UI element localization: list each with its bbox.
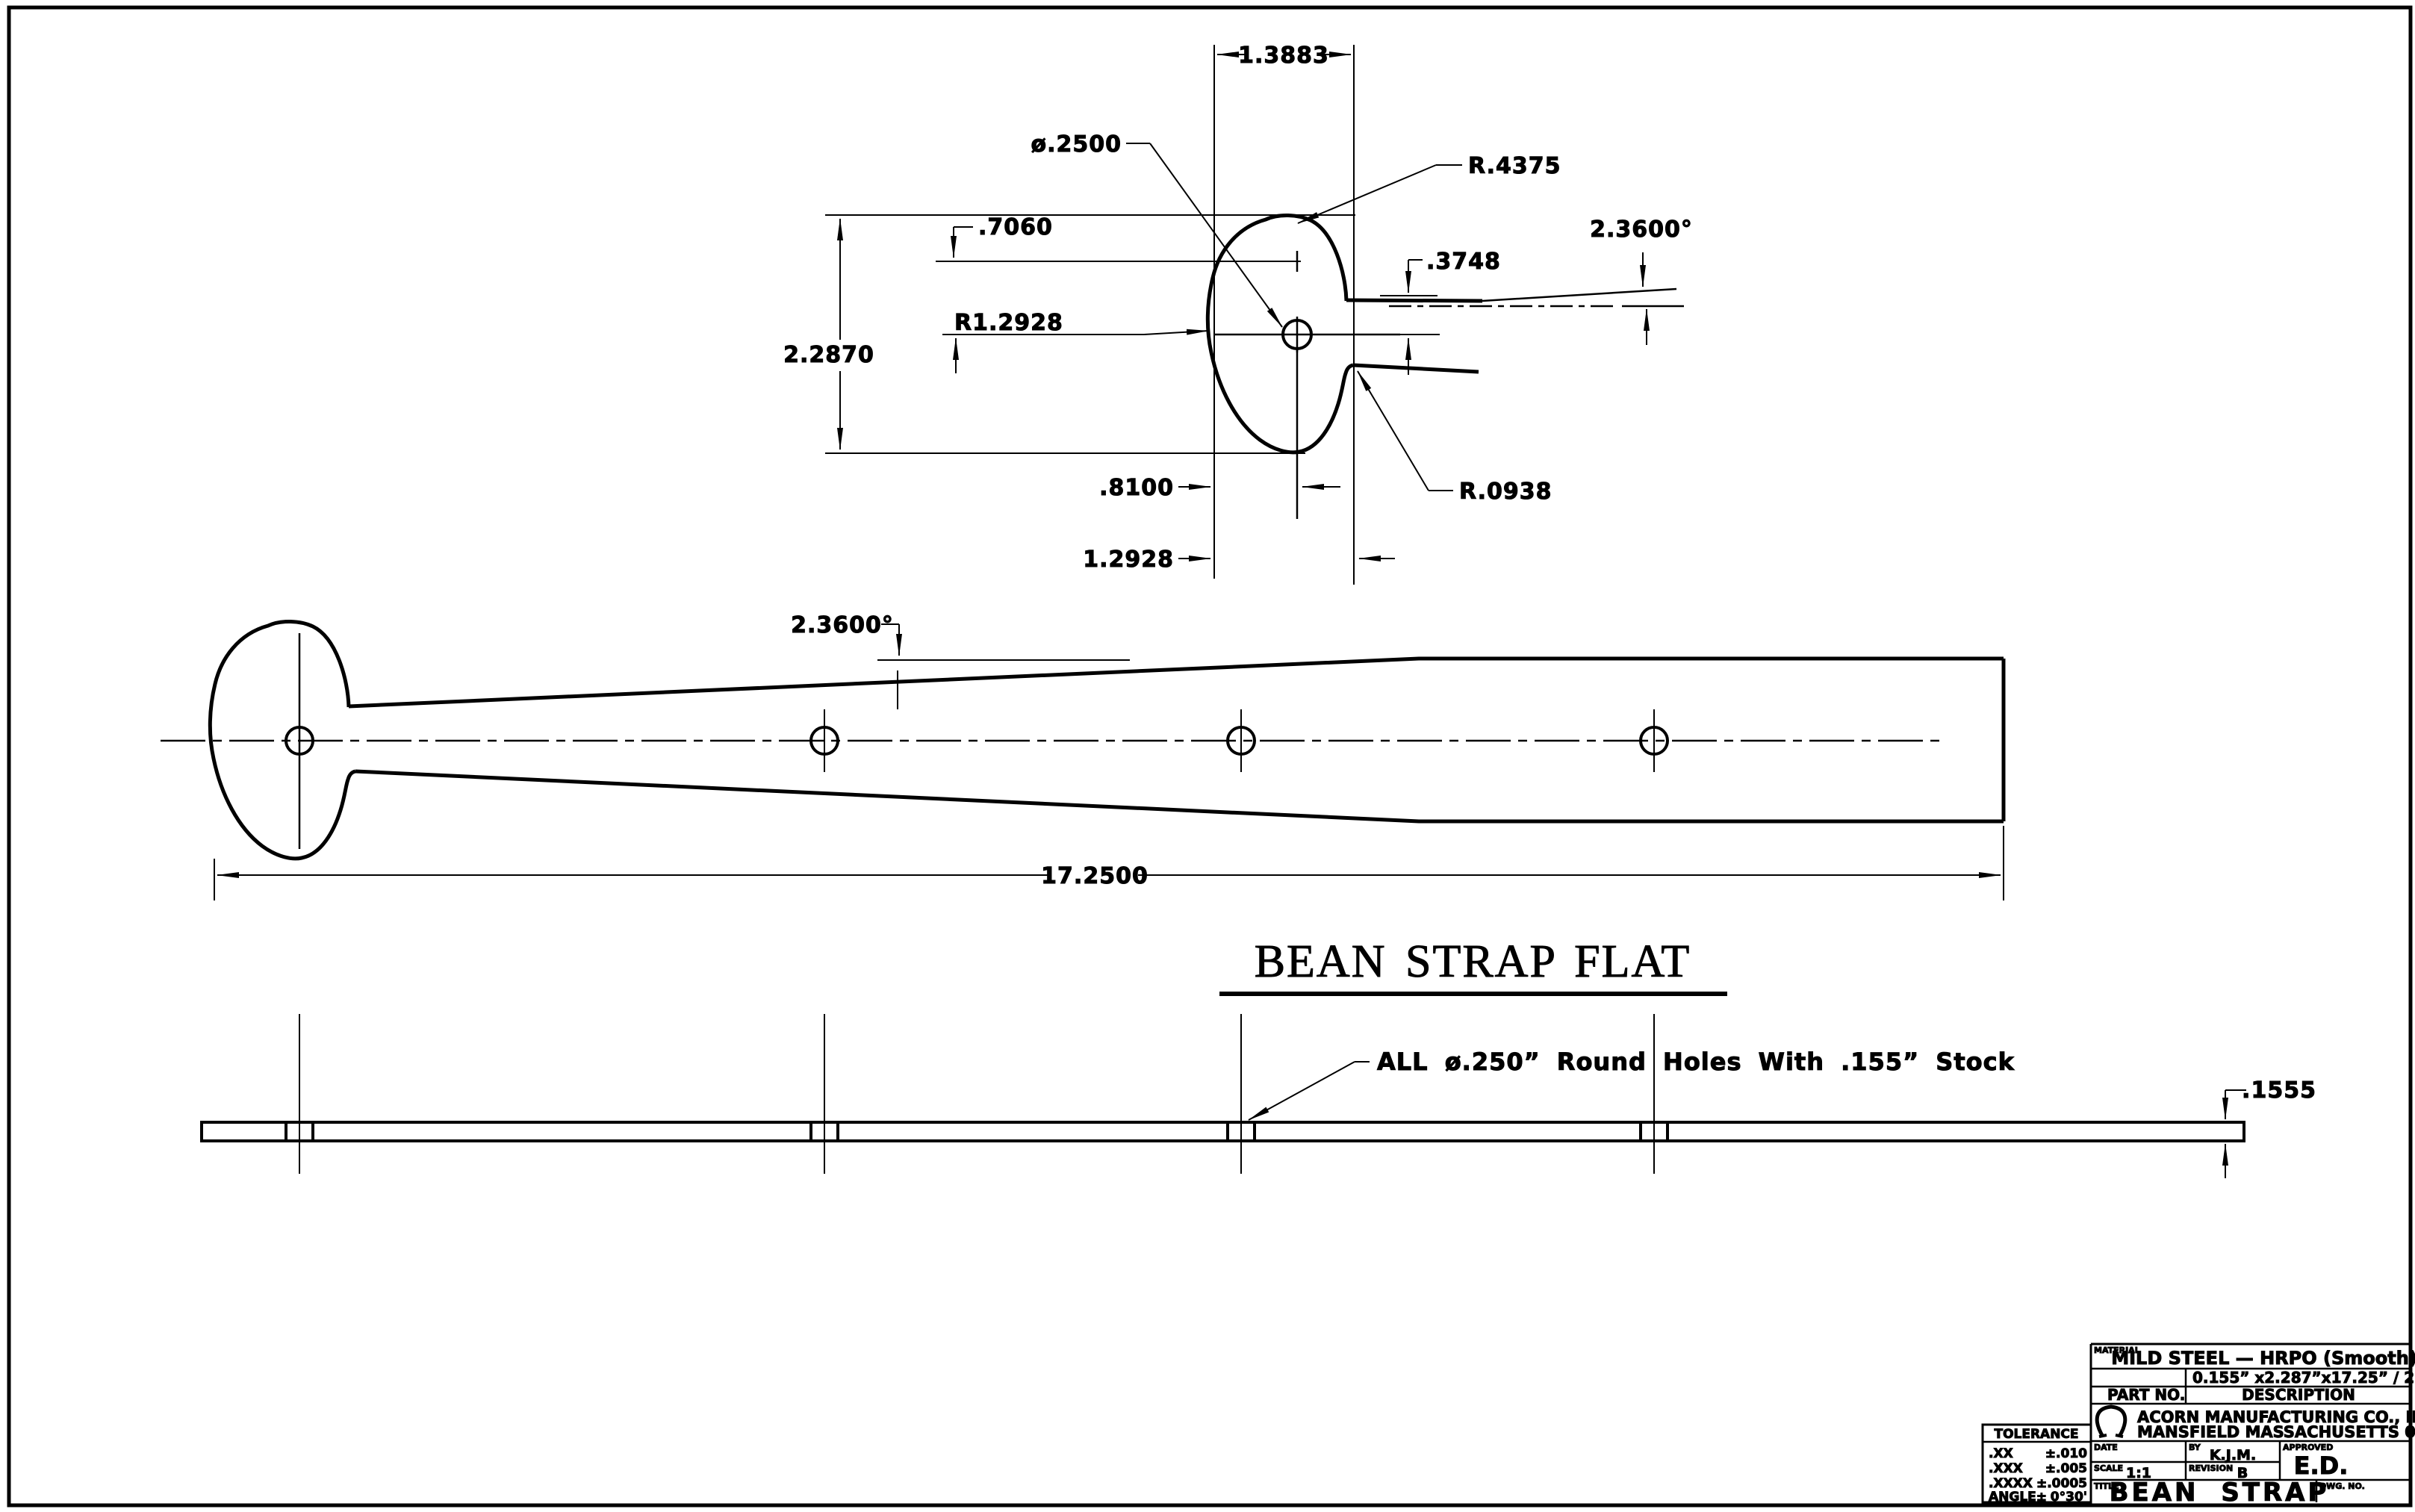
dim-head-height: 2.2870 <box>783 219 874 449</box>
flat-view: 2.3600° 17.2500 BEAN STRAP FLAT <box>161 612 2004 996</box>
dim-notch-offset: 1.2928 <box>1083 547 1395 573</box>
dwg-no-label: DWG. NO. <box>2319 1481 2365 1491</box>
dim-main-radius-text: R1.2928 <box>954 310 1063 336</box>
description-label: DESCRIPTION <box>2242 1386 2355 1404</box>
dim-head-height-text: 2.2870 <box>783 342 874 368</box>
dim-edge-to-center-text: .3748 <box>1426 249 1501 275</box>
dim-lobe-radius: R.4375 <box>1298 153 1561 223</box>
date-label: DATE <box>2094 1443 2118 1452</box>
dim-head-width: 1.3883 <box>1217 43 1351 69</box>
dim-thickness-text: .1555 <box>2242 1077 2316 1104</box>
bean-strap-drawing: 1.3883 R.4375 ø.2500 .7060 2.2870 <box>0 0 2415 1512</box>
dim-lobe-offset-text: .7060 <box>978 214 1053 240</box>
dim-notch-radius-text: R.0938 <box>1459 479 1552 505</box>
tol-row-value: ±.010 <box>2045 1446 2087 1461</box>
approved-value: E.D. <box>2294 1452 2349 1480</box>
tol-row-label: ANGLE± <box>1989 1490 2047 1505</box>
company-line2: MANSFIELD MASSACHUSETTS 02048 <box>2137 1423 2415 1441</box>
sheet-border <box>9 7 2411 1505</box>
detail-view: 1.3883 R.4375 ø.2500 .7060 2.2870 <box>783 43 1693 585</box>
edge-bar <box>202 1122 2244 1141</box>
dim-lobe-offset: .7060 <box>936 214 1301 373</box>
tol-row-label: .XXXX <box>1989 1476 2033 1491</box>
part-no-label: PART NO. <box>2107 1386 2185 1404</box>
dim-notch-offset-text: 1.2928 <box>1083 547 1174 573</box>
edge-view: ALL ø.250” Round Holes With .155” Stock … <box>202 1014 2316 1178</box>
title-block: MATERIAL MILD STEEL — HRPO (Smooth) 0.15… <box>2091 1344 2415 1508</box>
stock-size: 0.155” x2.287”x17.25” / 21.25” <box>2192 1369 2415 1387</box>
by-value: K.J.M. <box>2210 1447 2256 1463</box>
tolerance-header: TOLERANCE <box>1994 1427 2078 1442</box>
acorn-logo <box>2097 1407 2125 1437</box>
dim-length: 17.2500 <box>214 826 2004 900</box>
dim-taper-angle-detail-text: 2.3600° <box>1590 217 1693 243</box>
dim-hole-offset: .8100 <box>1099 475 1340 501</box>
drawing-sheet: 1.3883 R.4375 ø.2500 .7060 2.2870 <box>0 0 2415 1512</box>
tolerance-block: TOLERANCE .XX ±.010 .XXX ±.005 .XXXX ±.0… <box>1983 1425 2091 1505</box>
tol-row-value: ±.0005 <box>2036 1476 2087 1491</box>
dim-edge-to-center: .3748 <box>1380 249 1501 375</box>
dim-taper-angle-detail: 2.3600° <box>1590 217 1693 345</box>
dim-main-radius: R1.2928 <box>942 310 1208 336</box>
tol-row-value: 0°30' <box>2051 1490 2087 1505</box>
dim-head-width-text: 1.3883 <box>1238 43 1329 69</box>
holes-note: ALL ø.250” Round Holes With .155” Stock <box>1249 1048 2015 1120</box>
title-value: BEAN STRAP <box>2110 1478 2330 1508</box>
tol-row-value: ±.005 <box>2045 1461 2087 1476</box>
tol-row-label: .XX <box>1989 1446 2013 1461</box>
dim-notch-radius: R.0938 <box>1358 371 1552 505</box>
scale-label: SCALE <box>2094 1463 2123 1473</box>
dim-hole-dia-text: ø.2500 <box>1031 131 1122 158</box>
caption-underline <box>1219 992 1727 996</box>
flat-view-caption: BEAN STRAP FLAT <box>1255 936 1691 987</box>
dim-lobe-radius-text: R.4375 <box>1468 153 1561 179</box>
by-label: BY <box>2189 1443 2201 1452</box>
material-value: MILD STEEL — HRPO (Smooth) <box>2111 1348 2415 1369</box>
dim-hole-offset-text: .8100 <box>1099 475 1174 501</box>
dim-length-text: 17.2500 <box>1041 863 1149 889</box>
dim-taper-angle-flat-text: 2.3600° <box>791 612 894 638</box>
revision-label: REVISION <box>2189 1463 2233 1473</box>
dim-taper-angle-flat: 2.3600° <box>791 612 1130 709</box>
holes-note-text: ALL ø.250” Round Holes With .155” Stock <box>1377 1048 2015 1076</box>
tol-row-label: .XXX <box>1989 1461 2023 1476</box>
